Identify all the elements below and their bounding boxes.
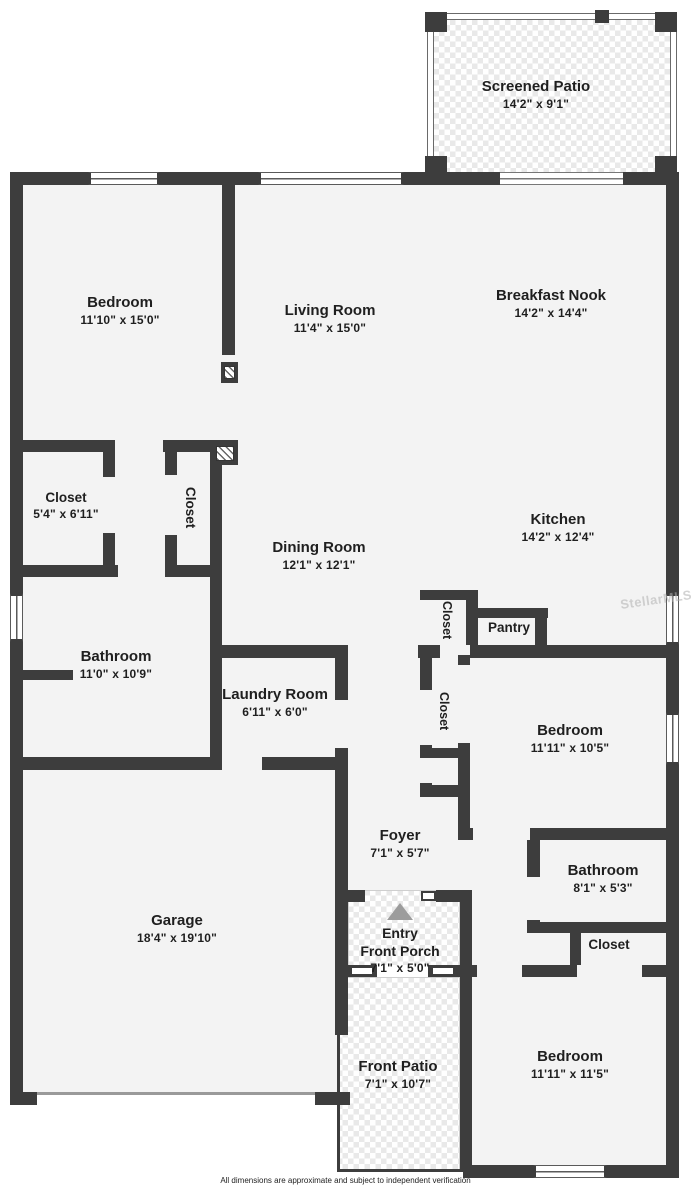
room-name: Foyer [330,827,470,846]
label-living-room: Living Room 11'4" x 15'0" [250,302,410,336]
room-name: Dining Room [239,539,399,558]
room-dims: 11'4" x 15'0" [250,321,410,336]
wall [436,890,460,902]
patio-screen-top-left [447,13,595,20]
label-closet-hall-left: Closet [183,477,198,539]
wall [420,658,432,690]
room-name: Breakfast Nook [471,287,631,306]
room-name: Bedroom [490,1048,650,1067]
wall [10,172,23,593]
hatch-marker [224,366,235,379]
wall [530,828,679,840]
label-closet-bedroom3: Closet [549,937,669,954]
room-dims: 12'1" x 12'1" [239,558,399,573]
room-dims: 7'1" x 5'0" [330,961,470,976]
wall [666,172,679,593]
wall [595,10,609,23]
wall [458,655,470,665]
label-kitchen: Kitchen 14'2" x 12'4" [478,511,638,545]
wall [418,645,440,658]
label-breakfast-nook: Breakfast Nook 14'2" x 14'4" [471,287,631,321]
label-bedroom-top: Bedroom 11'10" x 15'0" [40,294,200,328]
garage-door-opening [37,1092,315,1105]
room-name: Bedroom [40,294,200,313]
patio-screen-left [427,30,434,158]
wall [420,785,470,797]
wall [10,1092,37,1105]
label-entry: Entry [330,925,470,943]
room-name: Closet [6,490,126,507]
room-name: Kitchen [478,511,638,530]
wall [222,185,235,355]
wall [10,757,217,770]
room-dims: 11'11" x 10'5" [490,741,650,756]
label-closet-kitchen: Closet [440,597,454,643]
label-bedroom-mid: Bedroom 11'11" x 10'5" [490,722,650,756]
room-dims: 7'1" x 5'7" [330,846,470,861]
wall [315,1092,350,1105]
label-laundry: Laundry Room 6'11" x 6'0" [195,686,355,720]
wall [10,642,23,1105]
room-dims: 14'2" x 14'4" [471,306,631,321]
label-front-patio: Front Patio 7'1" x 10'7" [318,1058,478,1092]
room-dims: 11'11" x 11'5" [490,1067,650,1082]
room-name: Living Room [250,302,410,321]
porch-window-symbol [421,891,436,901]
wall [642,965,679,977]
room-name: Entry [330,925,470,943]
room-name: Closet [549,937,669,954]
label-pantry: Pantry [469,620,549,637]
room-dims: 14'2" x 12'4" [478,530,638,545]
room-dims: 5'4" x 6'11" [6,507,126,522]
room-name: Front Porch [330,943,470,961]
patio-sliding-door [500,172,623,185]
wall [210,645,347,658]
window-bedroom-mid [666,712,679,765]
room-name: Bathroom [523,862,683,881]
wall [168,565,222,577]
label-bathroom-2: Bathroom 8'1" x 5'3" [523,862,683,896]
window-bathroom-main [10,593,23,642]
patio-edge-left [337,1035,340,1172]
wall [463,1165,533,1178]
wall [404,172,500,185]
room-dims: 6'11" x 6'0" [195,705,355,720]
label-front-porch: Front Porch 7'1" x 5'0" [330,943,470,976]
room-name: Pantry [469,620,549,637]
wall [210,440,222,770]
wall [165,452,177,475]
wall [160,172,258,185]
wall [522,965,577,977]
label-closet-master: Closet 5'4" x 6'11" [6,490,126,522]
room-dims: 7'1" x 10'7" [318,1077,478,1092]
patio-screen-right [670,30,677,158]
room-name: Front Patio [318,1058,478,1077]
label-garage: Garage 18'4" x 19'10" [97,912,257,946]
room-dims: 8'1" x 5'3" [523,881,683,896]
wall [420,748,470,758]
floor-plan: Screened Patio 14'2" x 9'1" Bedroom 11'1… [0,0,691,1200]
label-dining-room: Dining Room 12'1" x 12'1" [239,539,399,573]
label-foyer: Foyer 7'1" x 5'7" [330,827,470,861]
patio-screen-top-right [609,13,655,20]
window-living-room [258,172,404,185]
room-name: Bedroom [490,722,650,741]
room-dims: 11'10" x 15'0" [40,313,200,328]
patio-edge-bottom [337,1169,463,1172]
window-bedroom-top [88,172,160,185]
wall [103,452,115,477]
hatch-marker [216,446,234,461]
room-dims: 11'0" x 10'9" [36,667,196,682]
wall [470,645,679,658]
room-name: Garage [97,912,257,931]
wall [607,1165,679,1178]
wall [425,12,447,32]
room-dims: 18'4" x 19'10" [97,931,257,946]
room-name: Bathroom [36,648,196,667]
window-bedroom-bottom [533,1165,607,1178]
wall [655,12,677,32]
room-dims: 14'2" x 9'1" [456,97,616,112]
room-name: Screened Patio [456,78,616,97]
wall [23,565,118,577]
room-name: Laundry Room [195,686,355,705]
entry-arrow-icon [387,903,413,920]
label-bathroom-main: Bathroom 11'0" x 10'9" [36,648,196,682]
wall [23,440,115,452]
label-screened-patio: Screened Patio 14'2" x 9'1" [456,78,616,112]
area-bedroom-bottom [472,1092,666,1167]
label-bedroom-bottom: Bedroom 11'11" x 11'5" [490,1048,650,1082]
wall [527,922,679,933]
wall [337,890,365,902]
label-closet-hall-mid: Closet [437,678,451,744]
